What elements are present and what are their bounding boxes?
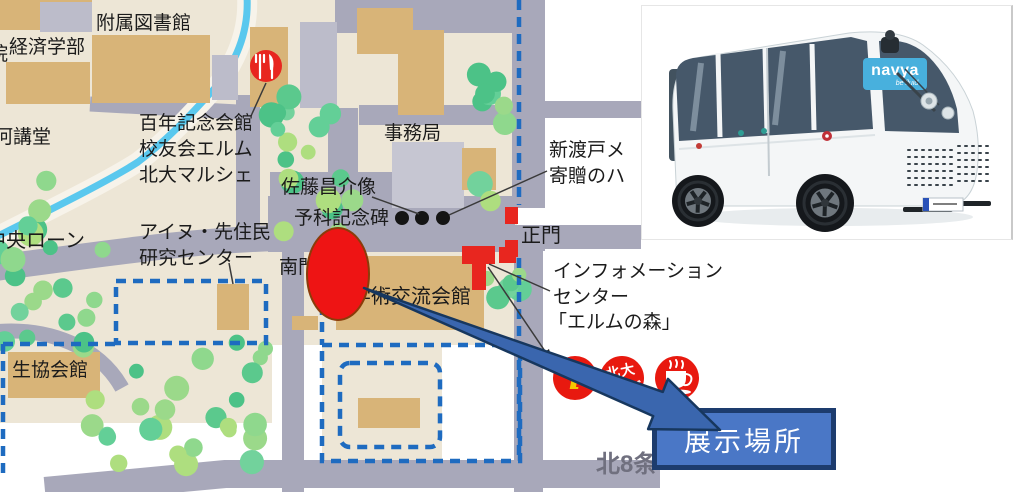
bus-side-windows [676,37,873,141]
monument-dots [395,211,450,225]
label-econ-partial: 院 [0,44,8,66]
label-nitobe-2: 寄贈のハ [549,166,625,188]
label-centennial-2: 校友会エルム [139,139,253,161]
info-icon: i [553,356,597,400]
coffee-cup-glyph [655,356,699,400]
label-ainu-1: アイヌ・先住民 [139,222,271,244]
label-centennial-3: 北大マルシェ [139,165,253,187]
exhibition-location-callout: 展示場所 [652,408,836,470]
label-info-center-1: インフォメーション [553,261,723,283]
cafe-icon [655,356,699,400]
label-library: 附属図書館 [96,13,191,35]
main-gate-marker [505,207,518,224]
label-yoka-monument: 予科記念碑 [294,208,389,230]
label-economics: 経済学部 [9,37,85,59]
label-info-center-3: 「エルムの森」 [548,312,681,334]
label-south-gate: 南門 [279,257,317,279]
label-admin-office: 事務局 [384,123,441,145]
label-academic-hall: 学術交流会館 [351,286,471,309]
label-centennial-1: 百年記念会館 [139,113,253,135]
navya-shuttle-illustration: navya be fluid [642,6,1012,239]
label-ainu-2: 研究センター [139,248,253,270]
label-sato-statue: 佐藤昌介像 [281,177,376,199]
label-coop-hall: 生協会館 [12,360,88,382]
screenshot-root: 附属図書館 経済学部 院 河講堂 百年記念会館 校友会エルム 北大マルシェ 事務… [0,0,1024,492]
bus-photo: navya be fluid [641,5,1013,240]
label-main-gate: 正門 [521,225,561,248]
label-central-lawn: 中央ローン [0,230,85,253]
label-kita8: 北8条 [596,451,657,479]
label-furukawa-hall: 河講堂 [0,127,51,149]
pointer-arrowhead [542,349,553,363]
callout-label: 展示場所 [684,420,804,459]
label-info-center-2: センター [553,287,629,309]
info-icon-letter: i [569,358,582,398]
label-nitobe-1: 新渡戸メ [549,140,625,162]
